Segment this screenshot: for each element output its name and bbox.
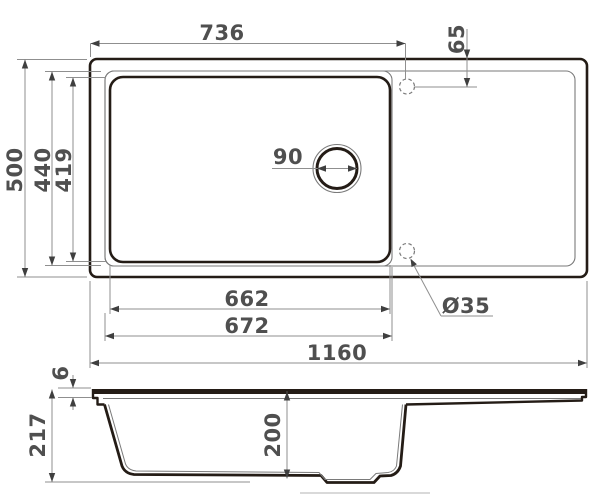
dim-label-200: 200 — [261, 412, 285, 457]
dim-label-217: 217 — [26, 412, 50, 457]
dim-label-736: 736 — [199, 21, 244, 45]
dim-662: 662 — [110, 265, 390, 314]
side-view: 6 217 200 — [26, 365, 586, 493]
dim-label-500: 500 — [3, 147, 27, 192]
dim-label-6: 6 — [49, 365, 73, 380]
dim-200: 200 — [261, 392, 290, 479]
dim-217: 217 — [26, 390, 250, 483]
sink-dimension-drawing: 736 65 500 440 — [0, 0, 600, 498]
dim-65: 65 — [415, 24, 477, 87]
dim-label-419: 419 — [52, 147, 76, 192]
side-bowl-inner-contour — [109, 405, 403, 480]
dim-label-90: 90 — [273, 145, 303, 169]
dim-d35: Ø35 — [411, 259, 494, 318]
top-view: 736 65 500 440 — [3, 21, 587, 368]
dim-label-1160: 1160 — [307, 341, 367, 365]
dim-6: 6 — [49, 365, 92, 410]
dim-736: 736 — [91, 21, 406, 79]
dim-label-65: 65 — [445, 24, 469, 54]
dim-label-d35: Ø35 — [442, 294, 491, 318]
tap-hole-bottom — [400, 244, 415, 259]
dim-label-672: 672 — [224, 314, 269, 338]
tap-hole-top — [400, 79, 415, 94]
drawing-canvas: 736 65 500 440 — [0, 0, 600, 498]
dim-label-662: 662 — [224, 287, 269, 311]
dim-1160: 1160 — [90, 281, 587, 368]
dim-419: 419 — [52, 78, 106, 262]
